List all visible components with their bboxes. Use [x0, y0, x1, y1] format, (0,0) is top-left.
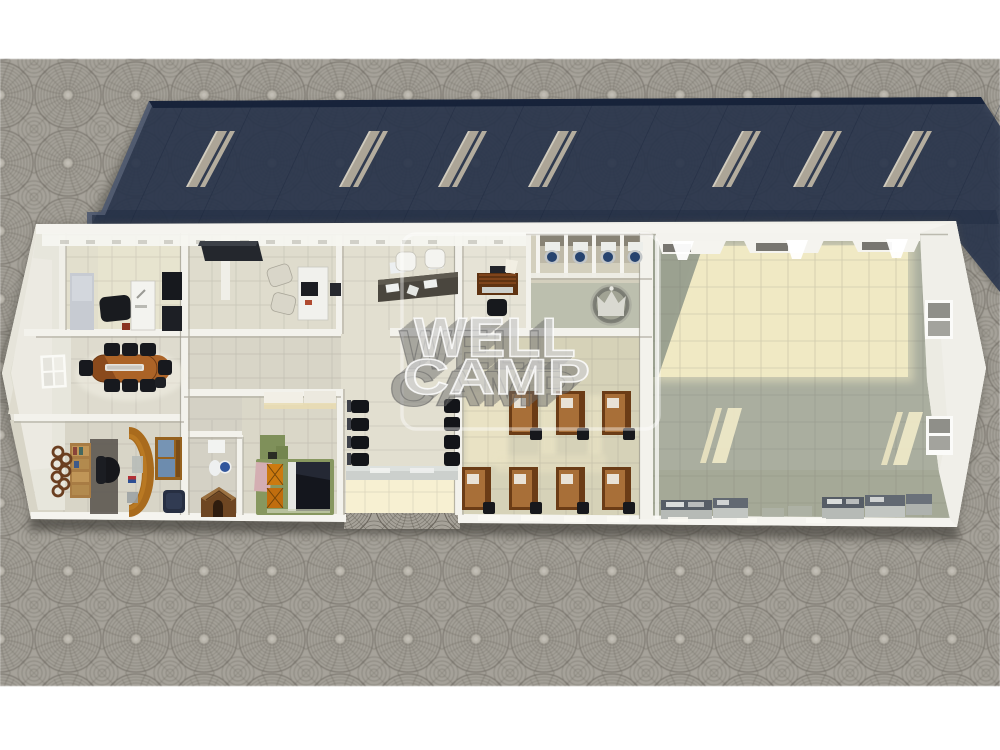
svg-text:CAMP: CAMP: [403, 349, 590, 405]
